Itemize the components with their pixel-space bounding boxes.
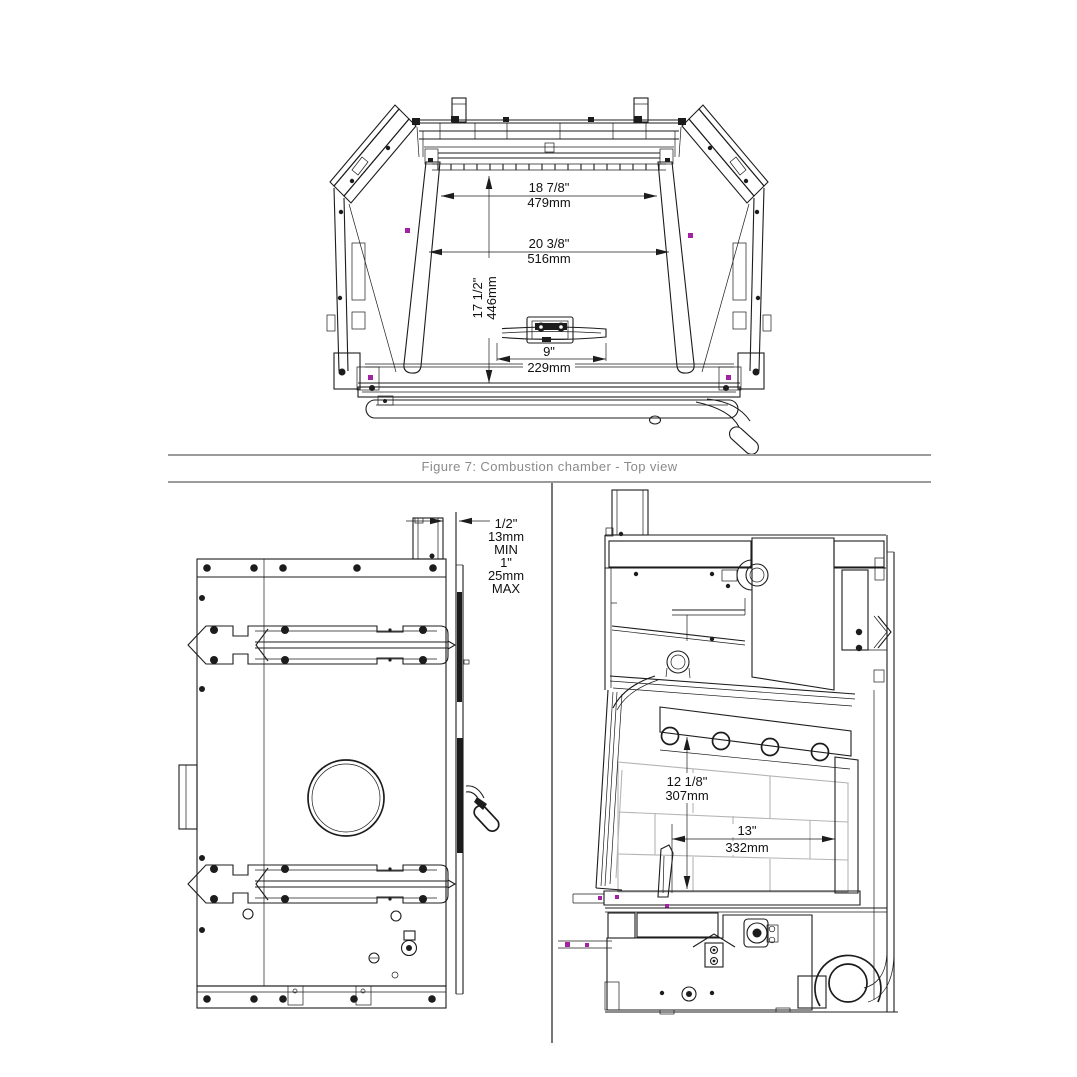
rear-heat-shield	[456, 512, 469, 994]
dim-firebox-height-in: 12 1/8"	[667, 774, 708, 789]
dim-depth-in: 17 1/2"	[470, 277, 485, 318]
drain-valve	[402, 931, 417, 956]
rear-heat-shield-rail-upper	[188, 626, 455, 664]
dim-rear-width-in: 18 7/8"	[529, 180, 570, 195]
air-tube-ticks	[438, 164, 659, 170]
rear-view-body	[179, 512, 501, 1008]
dim-rear-width-mm: 479mm	[527, 195, 570, 210]
dimension-rear-width: 18 7/8" 479mm	[441, 180, 657, 210]
dimension-firebox-height: 12 1/8" 307mm	[649, 737, 726, 889]
flue-channel	[752, 538, 834, 690]
baffle-board	[660, 707, 851, 756]
clearance-line-6: MAX	[492, 581, 521, 596]
caption-rule-bottom	[168, 481, 931, 483]
dimension-damper-width: 9" 229mm	[497, 343, 606, 375]
manual-page: 18 7/8" 479mm 20 3/8" 516mm 17 1/2" 446m…	[0, 0, 1077, 1077]
dim-damper-mm: 229mm	[527, 360, 570, 375]
dim-front-width-in: 20 3/8"	[529, 236, 570, 251]
door-latch-lever	[658, 845, 673, 897]
firebox-floor	[604, 891, 860, 905]
dim-firebox-depth-mm: 332mm	[725, 840, 768, 855]
dim-damper-in: 9"	[543, 344, 555, 359]
side-view-drawing: 12 1/8" 307mm 13" 332mm	[556, 487, 918, 1043]
rear-heat-shield-rail-lower	[188, 865, 455, 903]
pedestal-base	[558, 908, 898, 1014]
door-handle	[466, 786, 501, 834]
dimension-front-width: 20 3/8" 516mm	[429, 236, 669, 266]
figure-caption: Figure 7: Combustion chamber - Top view	[168, 459, 931, 474]
door-section	[596, 676, 658, 890]
dimension-shield-clearance: 1/2" 13mm MIN 1" 25mm MAX	[406, 516, 524, 596]
dim-depth-mm: 446mm	[484, 276, 499, 319]
top-view-drawing: 18 7/8" 479mm 20 3/8" 516mm 17 1/2" 446m…	[305, 88, 783, 455]
damper-bracket	[497, 317, 606, 343]
dim-firebox-depth-in: 13"	[737, 823, 756, 838]
dim-front-width-mm: 516mm	[527, 251, 570, 266]
caption-rule-top	[168, 454, 931, 456]
dim-firebox-height-mm: 307mm	[665, 788, 708, 803]
top-view-body	[327, 98, 771, 457]
chamber-wall-left	[404, 162, 440, 373]
flue-collar-circle	[308, 760, 384, 836]
air-tube-holes	[662, 728, 829, 761]
side-view-body	[558, 490, 898, 1014]
chamber-wall-right	[658, 162, 694, 373]
firebox-rear-wall	[835, 757, 858, 893]
flue-stub	[413, 518, 443, 559]
rear-view-drawing: 1/2" 13mm MIN 1" 25mm MAX	[162, 487, 554, 1043]
ash-pipe-handle	[727, 424, 762, 457]
flue-outlet	[606, 490, 648, 536]
